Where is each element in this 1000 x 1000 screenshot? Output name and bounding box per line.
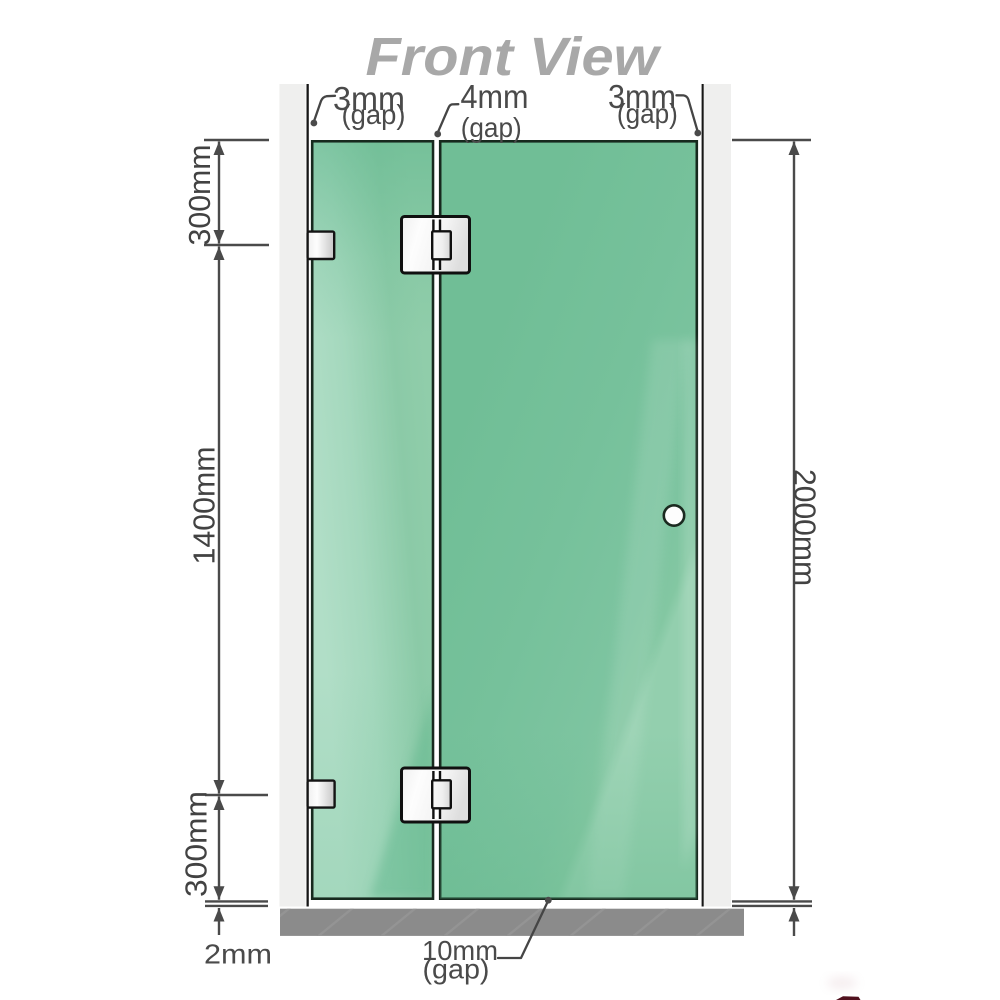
svg-text:2mm: 2mm	[204, 939, 272, 970]
svg-text:300mm: 300mm	[182, 145, 217, 246]
svg-text:300mm: 300mm	[179, 791, 214, 897]
svg-text:4mm: 4mm	[461, 78, 529, 115]
svg-text:2000mm: 2000mm	[788, 469, 823, 586]
svg-text:1400mm: 1400mm	[187, 447, 222, 565]
svg-text:(gap): (gap)	[342, 99, 406, 130]
svg-text:(gap): (gap)	[617, 98, 678, 129]
svg-text:(gap): (gap)	[461, 112, 522, 143]
svg-text:(gap): (gap)	[423, 954, 490, 985]
